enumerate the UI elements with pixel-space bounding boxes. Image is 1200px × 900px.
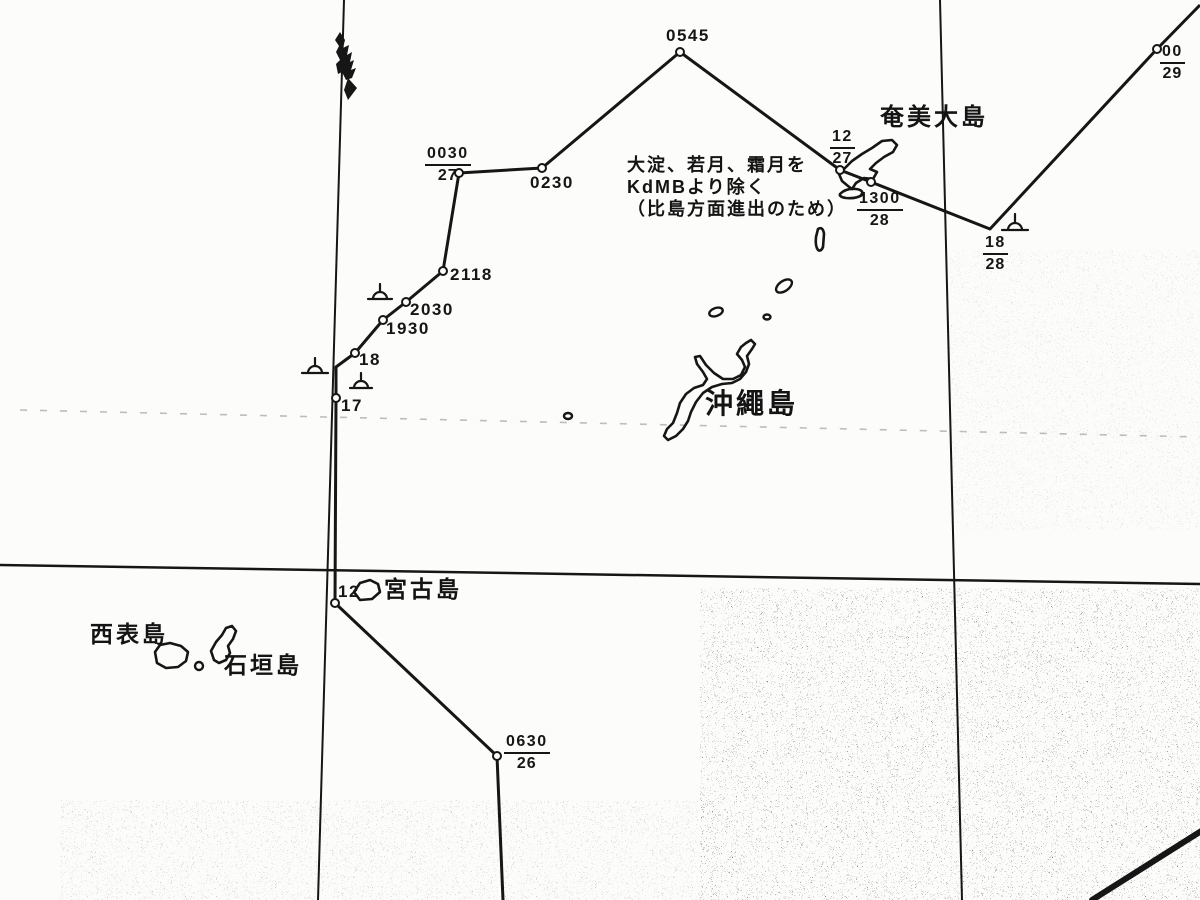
ink-blot-2 [344, 78, 357, 100]
waypoint-marker-1 [493, 752, 501, 760]
dome-event-symbol-2 [302, 358, 328, 373]
date-denominator: 26 [504, 756, 550, 772]
islet-outline-5 [195, 662, 203, 670]
island-label-iriomote: 西表島 [90, 623, 168, 646]
time-numerator: 1300 [857, 191, 903, 211]
island-label-okinawa: 沖繩島 [705, 390, 798, 418]
time-label-2030: 2030 [410, 301, 454, 318]
time-label-0545: 0545 [666, 27, 710, 44]
annotation-line-3: （比島方面進出のため） [627, 198, 847, 220]
date-denominator: 29 [1160, 66, 1185, 82]
meridian-line-1 [318, 0, 344, 900]
islet-outline-2 [708, 306, 724, 318]
annotation-note: 大淀、若月、霜月を KdMBより除く （比島方面進出のため） [627, 154, 847, 220]
islet-outline-1 [774, 277, 794, 296]
dome-event-symbol-4 [1002, 214, 1028, 230]
datetime-label-0630-26: 063026 [504, 734, 550, 772]
time-label-18: 18 [359, 351, 381, 368]
date-denominator: 28 [857, 213, 903, 229]
waypoint-marker-12 [867, 178, 875, 186]
date-denominator: 28 [983, 257, 1008, 273]
waypoint-marker-3 [332, 394, 340, 402]
waypoint-marker-4 [351, 349, 359, 357]
waypoint-marker-6 [402, 298, 410, 306]
island-label-amami-oshima: 奄美大島 [880, 106, 988, 130]
waypoint-marker-9 [538, 164, 546, 172]
scanned-track-chart: 0545023021182030193018171200302706302612… [0, 0, 1200, 900]
islet-outline-3 [764, 315, 771, 320]
islet-outline-4 [564, 413, 572, 419]
time-label-12: 12 [338, 583, 360, 600]
waypoint-marker-10 [676, 48, 684, 56]
island-outline-amami-islet-long [816, 228, 824, 250]
island-label-ishigaki: 石垣島 [224, 654, 302, 677]
datetime-label-18-28: 1828 [983, 235, 1008, 273]
time-numerator: 12 [830, 129, 855, 149]
waypoint-marker-7 [439, 267, 447, 275]
annotation-line-2: KdMBより除く [627, 176, 847, 198]
map-canvas [0, 0, 1200, 900]
time-label-2118: 2118 [450, 266, 493, 283]
time-label-17: 17 [341, 397, 363, 414]
photocopy-noise-3 [950, 250, 1200, 530]
annotation-line-1: 大淀、若月、霜月を [627, 154, 847, 176]
dome-event-symbol-3 [350, 373, 372, 388]
photocopy-noise-1 [700, 588, 1200, 900]
time-label-1930: 1930 [386, 320, 430, 337]
parallel-line-1 [0, 565, 1200, 584]
time-numerator: 0630 [504, 734, 550, 754]
ink-blot-1 [335, 32, 356, 80]
time-numerator: 18 [983, 235, 1008, 255]
time-numerator: 00 [1160, 44, 1185, 64]
datetime-label-00-29: 0029 [1160, 44, 1185, 82]
datetime-label-1300-28: 130028 [857, 191, 903, 229]
time-label-0230: 0230 [530, 174, 574, 191]
time-numerator: 0030 [425, 146, 471, 166]
island-label-miyako: 宮古島 [384, 578, 462, 601]
photocopy-noise-2 [60, 800, 720, 900]
date-denominator: 27 [425, 168, 471, 184]
datetime-label-0030-27: 003027 [425, 146, 471, 184]
dome-event-symbol-1 [368, 284, 392, 299]
